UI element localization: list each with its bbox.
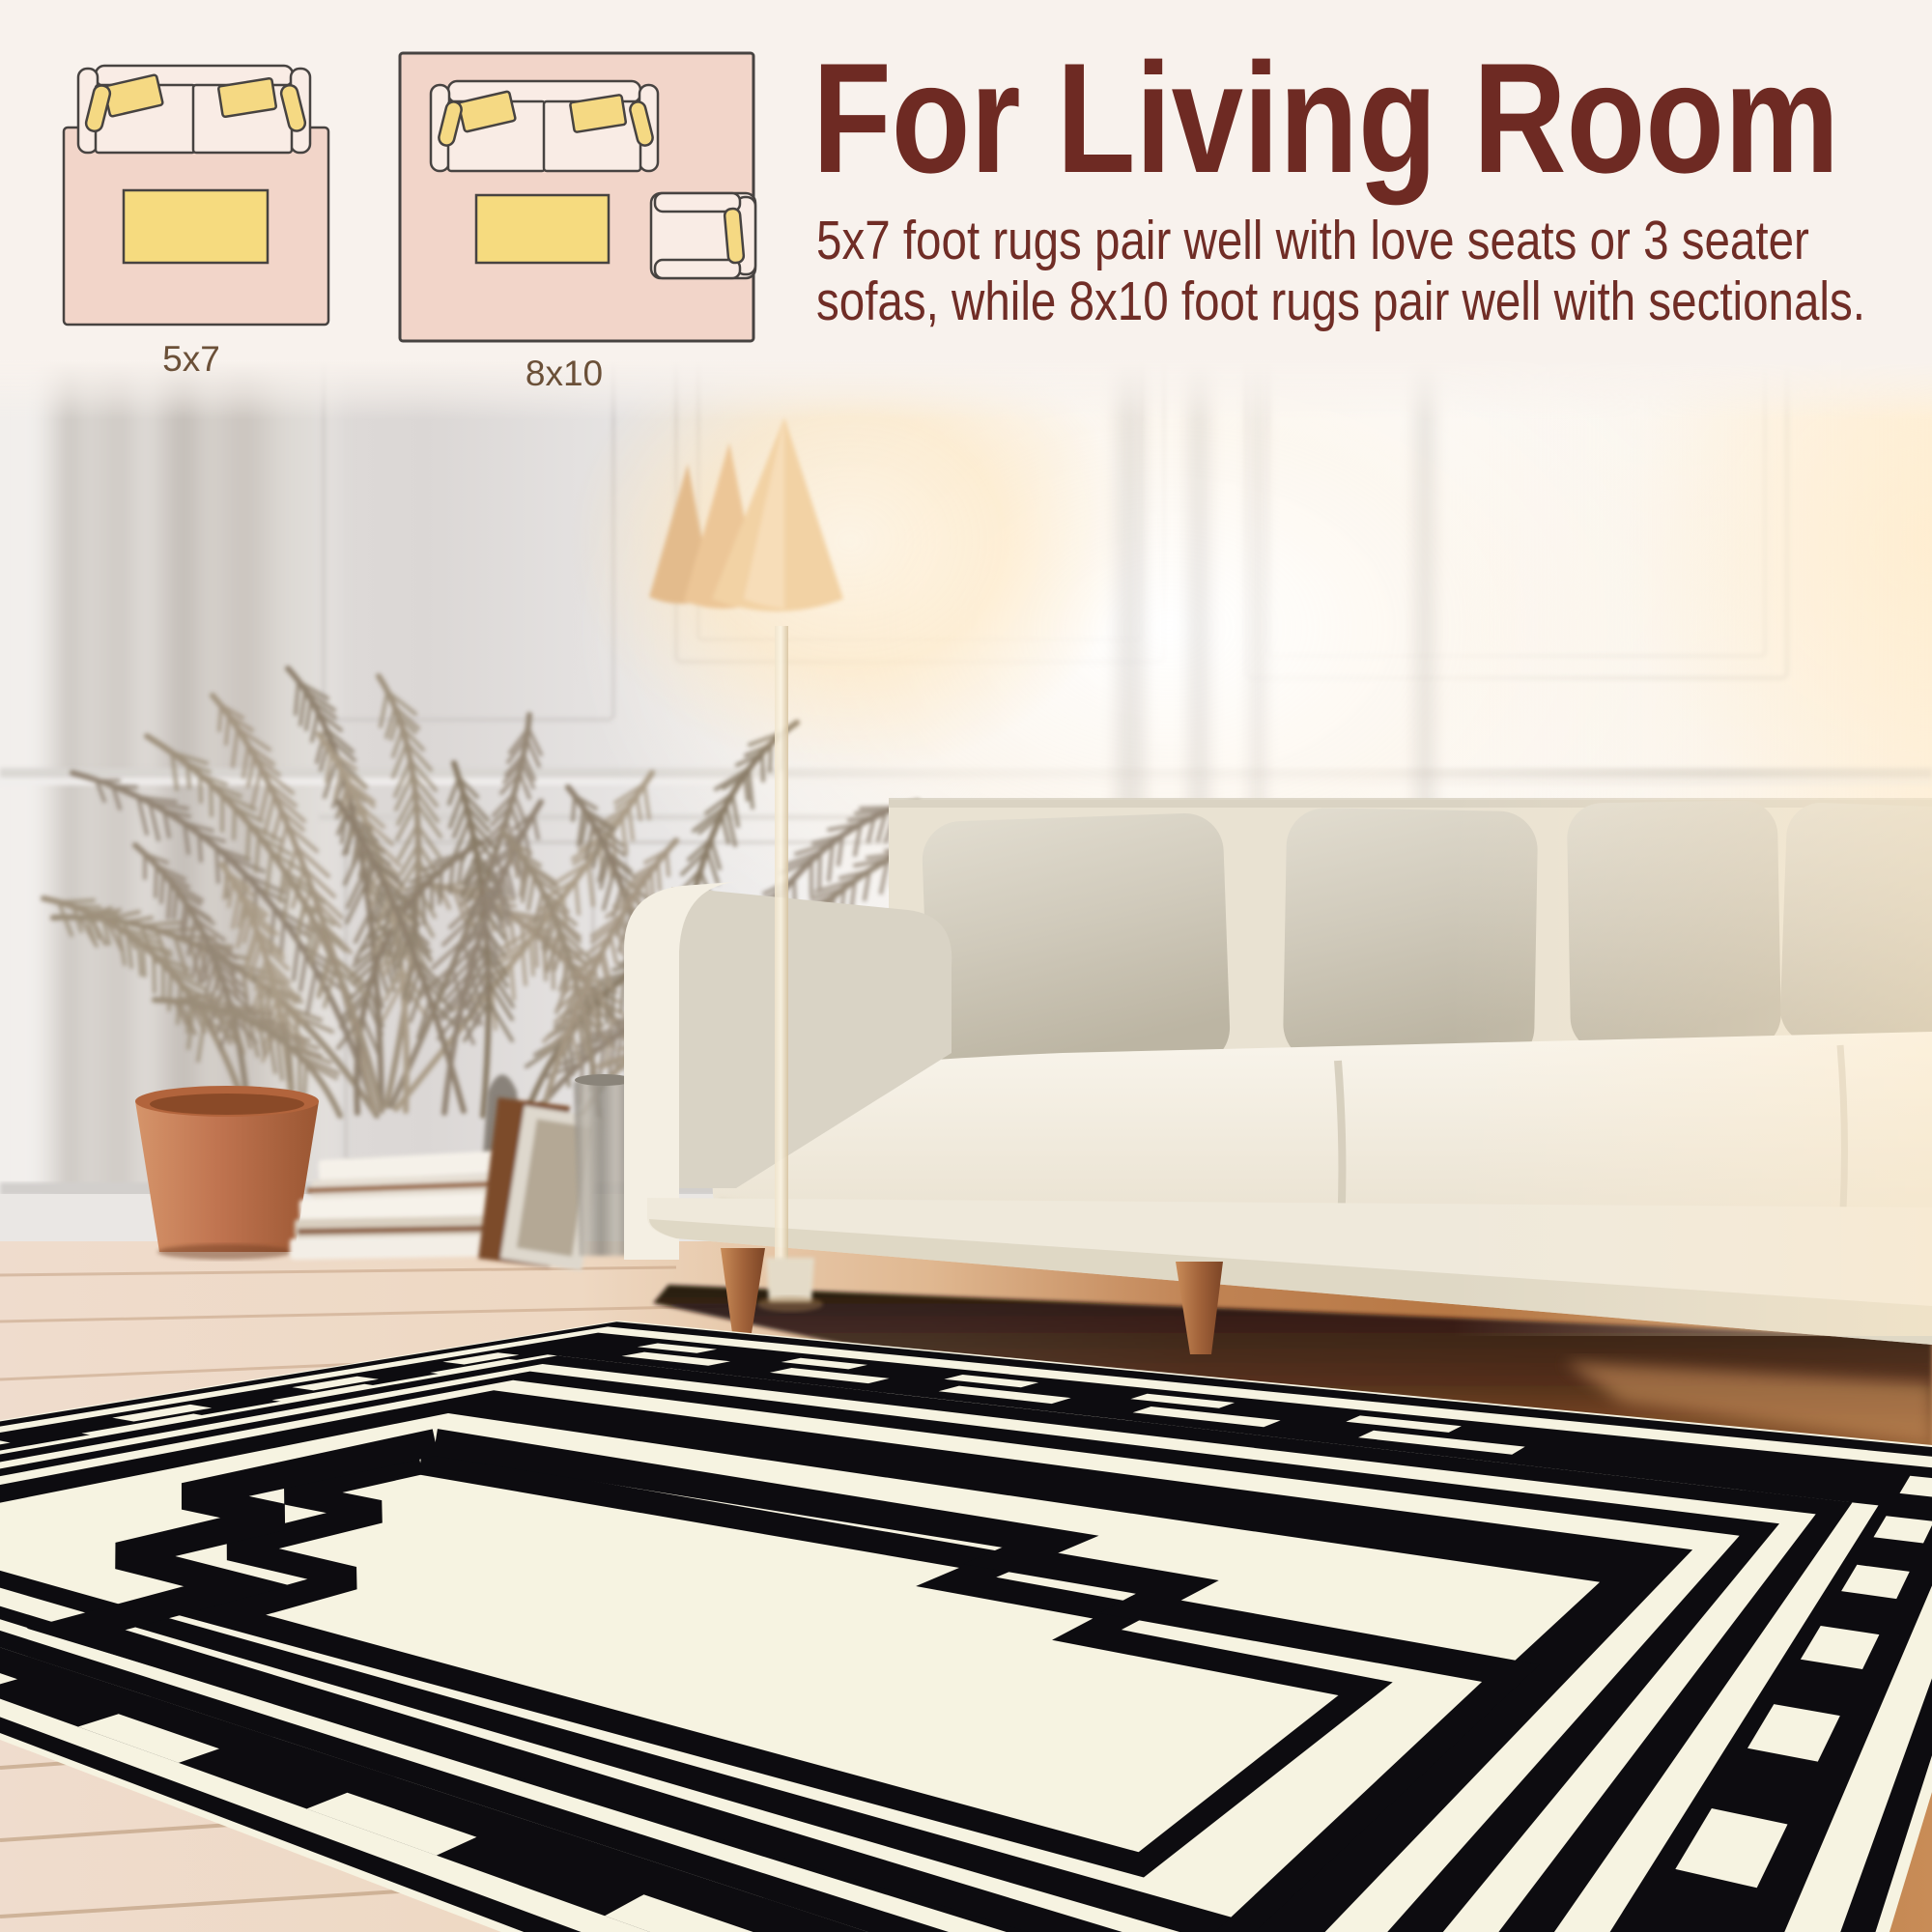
- svg-text:5x7: 5x7: [162, 339, 220, 379]
- svg-text:8x10: 8x10: [526, 354, 603, 393]
